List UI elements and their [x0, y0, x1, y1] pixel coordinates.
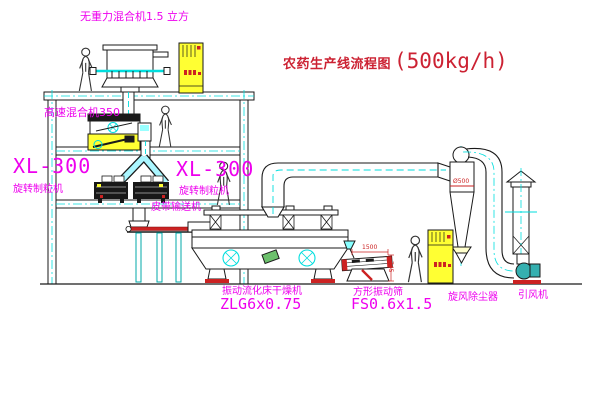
cyclone-dust-collector [450, 146, 474, 268]
worker-second-floor [159, 106, 171, 147]
granulator-left [94, 176, 128, 203]
dim-cyclone-diameter: Ø500 [453, 179, 469, 185]
label-cyclone: 旋风除尘器 [448, 293, 498, 303]
induced-draft-fan [513, 254, 541, 284]
diagram-title-text: 农药生产线流程图 [283, 53, 391, 72]
label-dryer-model: ZLG6x0.75 [220, 297, 301, 312]
label-granulator-right-name: 旋转制粒机 [179, 187, 229, 197]
label-screen-model: FS0.6x1.5 [351, 297, 432, 312]
worker-ground [408, 236, 422, 282]
label-belt-conveyor: 皮带输送机 [151, 203, 201, 213]
diagram-title: 农药生产线流程图 (500kg/h) [283, 49, 508, 73]
exhaust-stack [505, 168, 537, 262]
control-cabinet-ground [428, 230, 453, 283]
label-granulator-left-name: 旋转制粒机 [13, 185, 63, 195]
diagram-title-capacity: (500kg/h) [394, 49, 508, 73]
belt-conveyor [126, 226, 198, 282]
discharge-chute [129, 208, 149, 227]
label-gravity-mixer: 无重力混合机1.5 立方 [80, 11, 189, 22]
label-high-speed-mixer: 高速混合机350 [44, 107, 120, 118]
label-granulator-left-model: XL-300 [13, 156, 91, 176]
label-granulator-right-model: XL-300 [176, 159, 254, 179]
dim-screen-height: 745 [387, 261, 393, 272]
cad-flow-diagram: 农药生产线流程图 (500kg/h) 无重力混合机1.5 立方 高速混合机350… [0, 0, 600, 403]
label-fan: 引风机 [518, 291, 548, 301]
control-cabinet-top [179, 43, 203, 93]
dim-screen-length: 1500 [362, 245, 377, 251]
gravity-free-mixer [90, 45, 170, 92]
